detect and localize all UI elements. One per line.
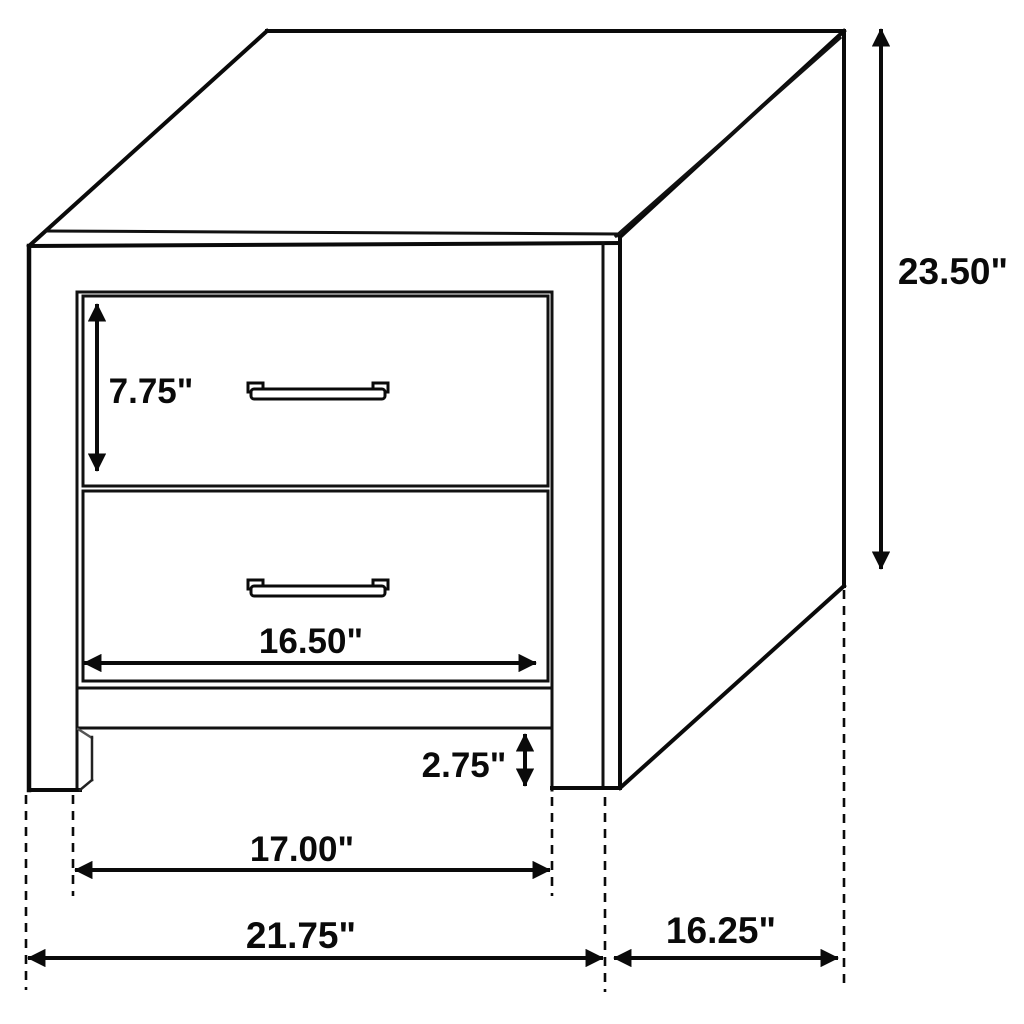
top-drawer-handle xyxy=(248,383,388,399)
dimension-drawer-width: 16.50" xyxy=(84,622,536,663)
dimension-inner-width: 17.00" xyxy=(75,830,550,870)
overall-height-label: 23.50" xyxy=(898,251,1008,292)
furniture-dimension-diagram: 23.50" 7.75" 16.50" 2.75" 17.00" 21.75" … xyxy=(0,0,1024,1024)
dimension-overall-width: 21.75" xyxy=(28,915,603,958)
inner-width-label: 17.00" xyxy=(250,830,354,869)
nightstand-front-frame xyxy=(29,246,620,790)
nightstand-top-face xyxy=(29,31,844,246)
top-drawer-height-label: 7.75" xyxy=(109,372,194,411)
nightstand-left-foot-detail xyxy=(78,729,92,790)
dimension-top-drawer-height: 7.75" xyxy=(97,304,193,471)
depth-label: 16.25" xyxy=(666,910,776,951)
overall-width-label: 21.75" xyxy=(246,915,356,956)
dimension-overall-height: 23.50" xyxy=(881,29,1008,569)
dimension-depth: 16.25" xyxy=(614,910,838,958)
nightstand-side-panel xyxy=(603,31,844,788)
dimension-base-clearance: 2.75" xyxy=(422,734,525,786)
bottom-drawer-handle xyxy=(248,580,388,596)
base-clearance-label: 2.75" xyxy=(422,746,507,785)
drawer-width-label: 16.50" xyxy=(259,622,363,661)
